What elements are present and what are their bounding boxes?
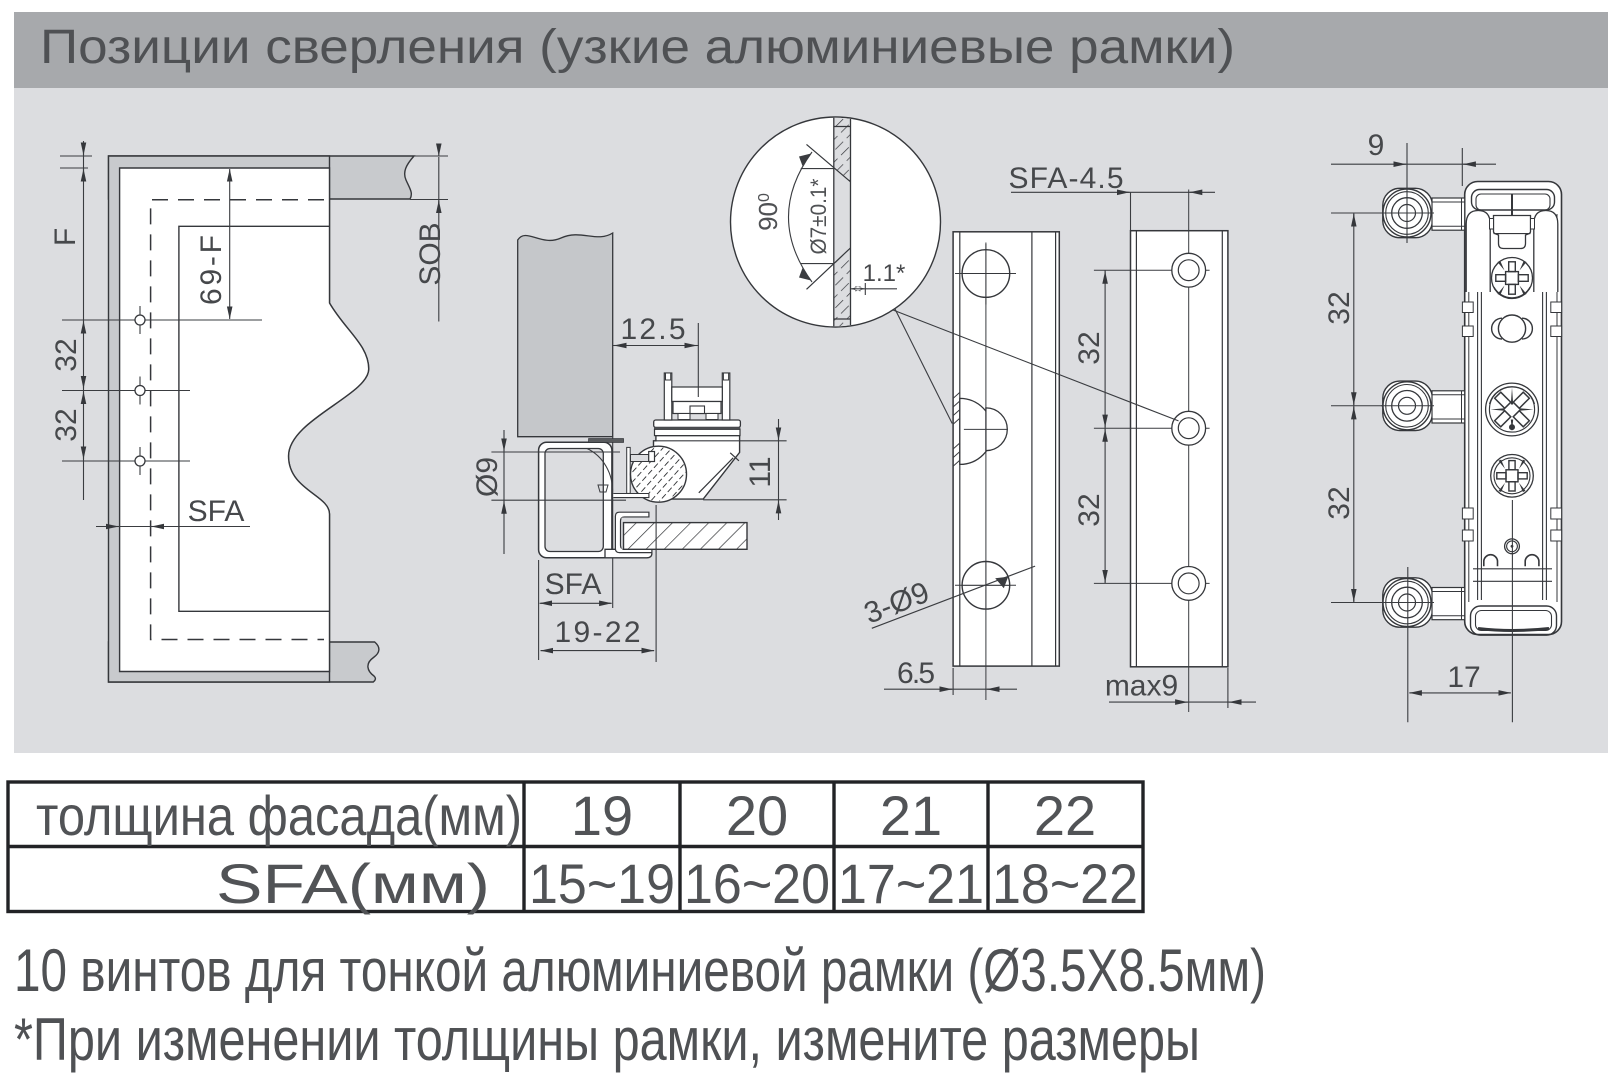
svg-text:6.5: 6.5 [897, 657, 935, 690]
svg-text:69-F: 69-F [195, 235, 228, 305]
svg-text:F: F [49, 228, 82, 246]
svg-text:19-22: 19-22 [555, 616, 641, 649]
svg-text:SFA-4.5: SFA-4.5 [1009, 162, 1124, 195]
svg-text:max9: max9 [1105, 670, 1178, 703]
svg-text:17~21: 17~21 [838, 852, 984, 915]
svg-text:11: 11 [744, 456, 777, 487]
svg-text:Ø7±0.1*: Ø7±0.1* [806, 178, 831, 254]
svg-text:16~20: 16~20 [684, 852, 830, 915]
svg-text:19: 19 [571, 784, 633, 847]
svg-text:15~19: 15~19 [529, 852, 675, 915]
svg-text:32: 32 [50, 338, 83, 371]
svg-text:SFA: SFA [188, 495, 245, 528]
svg-text:толщина фасада(мм): толщина фасада(мм) [36, 784, 522, 847]
svg-text:32: 32 [1073, 493, 1106, 526]
svg-text:SFA(мм): SFA(мм) [216, 852, 490, 915]
svg-text:Позиции сверления (узкие алюми: Позиции сверления (узкие алюминиевые рам… [40, 21, 1235, 74]
svg-text:18~22: 18~22 [992, 852, 1138, 915]
svg-text:32: 32 [50, 408, 83, 441]
svg-text:10 винтов для тонкой алюминиев: 10 винтов для тонкой алюминиевой рамки (… [14, 937, 1266, 1004]
svg-text:21: 21 [880, 784, 942, 847]
svg-text:17: 17 [1447, 661, 1480, 694]
svg-text:32: 32 [1323, 486, 1356, 519]
svg-text:1.1*: 1.1* [863, 260, 906, 287]
svg-text:32: 32 [1073, 331, 1106, 364]
svg-text:22: 22 [1034, 784, 1096, 847]
svg-text:20: 20 [726, 784, 788, 847]
svg-text:32: 32 [1323, 291, 1356, 324]
svg-text:SOB: SOB [414, 222, 447, 285]
svg-text:Ø9: Ø9 [471, 457, 504, 497]
svg-text:9: 9 [1368, 129, 1385, 162]
svg-text:SFA: SFA [545, 568, 602, 601]
svg-text:12.5: 12.5 [621, 313, 686, 346]
svg-text:*При изменении толщины рамки,: *При изменении толщины рамки, измените р… [14, 1006, 1200, 1073]
